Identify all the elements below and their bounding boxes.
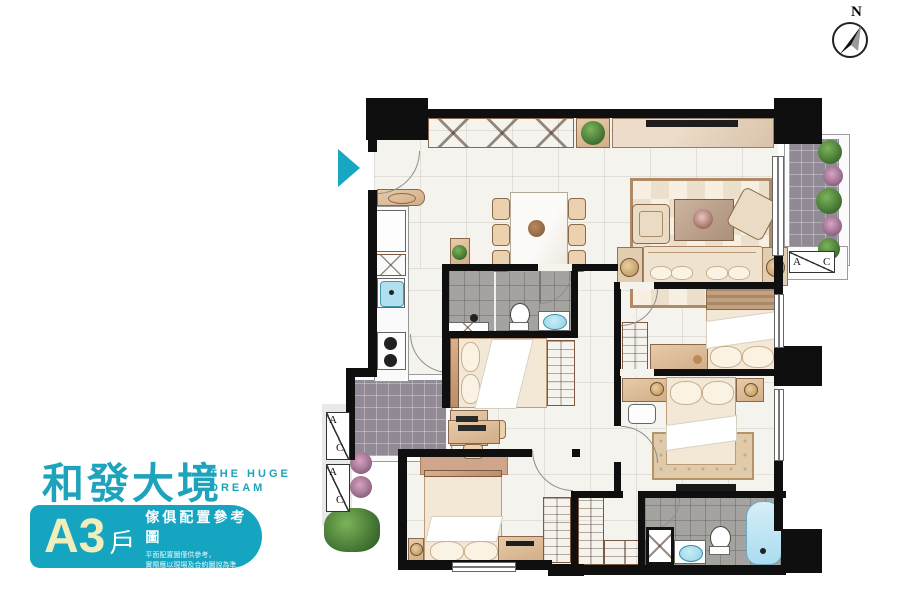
master-pillow [670,381,702,405]
badge-disclaimer-2: 實際應以現場及合約圖說為準 [145,560,262,570]
entrance-arrow-icon [338,149,360,187]
armchair-left-seat [639,211,663,237]
wall-wardrobe-top [571,491,623,498]
dining-chair [492,198,510,220]
dining-chair [568,198,586,220]
utility-shaft [646,527,674,565]
wall-pillar-topright [774,98,822,144]
blbedroom-tv-icon [506,541,534,546]
blbedroom-footboard [424,470,502,477]
wall-bath1-right [571,264,578,338]
bedroom3-pillow [710,346,742,368]
master-tv-icon [676,484,736,491]
wall-mbath-left [638,491,645,567]
toilet-2-tank [709,546,730,555]
wall-mbath-top [638,491,786,498]
brand-tagline-line2: DREAM [210,482,265,494]
sofa-side-pot-icon [620,258,639,277]
stove-burner-icon [384,354,397,367]
sofa-cushion [706,266,728,280]
wall-left-stub [368,140,377,152]
kitchen-cabinet [376,254,406,276]
door-gap-bath1 [538,264,572,271]
door-leaf-bath1 [539,271,541,303]
shower-head-icon [470,314,478,322]
bedroom3-dresser-knob [693,355,702,364]
wall-left [368,190,377,376]
door-gap-master [620,369,654,376]
shrub-icon [324,508,380,552]
shoe-cabinet-tray [388,193,416,204]
balcony-plant-icon [816,188,842,214]
dining-chair [568,224,586,246]
left-balcony-flower-icon [350,476,372,498]
bedroom2-pillow [461,342,480,372]
wall-bath1-top [442,264,618,271]
badge-disclaimer-1: 平面配置圖僅供參考， [145,550,262,560]
wall-blbedroom-north-stub [572,449,580,457]
wall-blbedroom-north [398,449,532,457]
blbedroom-pillow [464,541,498,562]
vanity-2-basin [679,545,703,562]
bathtub-drain-icon [760,548,766,554]
ac-unit-left-top: A C [326,412,350,460]
dining-centerpiece [528,220,545,237]
master-lamp-icon [744,383,758,397]
compass-north-label: N [851,4,862,21]
wall-right-block [774,346,822,386]
dining-chair [492,224,510,246]
wall-top [425,109,780,118]
floorplan-page: { "brand": { "logo_text": "和發大境", "logo_… [0,0,900,600]
tv-icon [646,120,738,127]
wall-corridor-right [614,282,621,376]
blbedroom-dresser [498,536,544,561]
wardrobe-entry [428,118,574,148]
door-gap-bedroom3 [620,282,654,289]
balcony-flower-icon [823,166,843,186]
left-balcony-tiles [352,380,446,456]
blbedroom-wardrobe-a [543,497,571,563]
sink-faucet-icon [389,290,394,295]
bedroom3-quilt [706,288,776,310]
brand-logo-text: 和發大境 [42,450,222,511]
wall-bath1-bottom [442,331,578,338]
sofa-cushion [650,266,672,280]
toilet-1-tank [509,322,529,331]
bedroom2-wardrobe [547,340,575,406]
balcony-flower-icon [822,216,842,236]
unit-suffix: 戶 [109,523,135,560]
vanity-1-basin [543,314,567,330]
wall-master-west-upper [614,376,621,426]
window-blbedroom [452,562,516,572]
wall-bedroom-west [398,450,407,568]
wall-wardrobe-divider [571,491,578,567]
stove-burner-icon [384,337,397,350]
bedroom3-bookshelf [622,322,648,370]
wall-bottom-b [560,565,786,575]
window-balcony-slider [772,156,784,256]
blbedroom-lamp-icon [410,543,423,556]
wall-bed2-west [442,338,450,408]
blbedroom-pillow [430,541,464,562]
master-lamp-icon [650,382,664,396]
master-pillow [702,381,734,405]
badge-title: 傢俱配置參考圖 [145,507,262,547]
wall-pillar-bottomright [781,529,822,573]
wall-bath1-left [442,264,449,338]
sofa-cushion [671,266,693,280]
window-bedroom3 [774,294,784,348]
bedroom3-pillow [742,346,774,368]
console-plant-icon [452,245,467,260]
wall-pillar-topleft [366,98,428,140]
shelf-plant-icon [581,121,605,145]
master-stool [628,404,656,424]
sofa-back-line [648,252,756,253]
window-master [774,389,784,461]
ac-unit-right: A C [789,251,835,273]
coffee-table-flowers-icon [693,209,713,229]
blbedroom-blanket [425,516,503,542]
sofa-cushion [728,266,750,280]
unit-number: A3 [44,513,105,561]
bedroom2-headboard [450,338,459,408]
unit-badge: A3 戶 傢俱配置參考圖 平面配置圖僅供參考， 實際應以現場及合約圖說為準 [30,505,262,568]
blbedroom-desk-monitor [458,425,486,431]
brand-tagline-line1: THE HUGE [210,468,291,480]
blbedroom-wardrobe-b [578,497,604,565]
bedroom2-desk-monitor [456,416,478,422]
ac-unit-left-bottom: A C [326,464,350,512]
blbedroom-desk [448,420,500,444]
refrigerator [376,210,406,252]
shower-glass [494,271,496,331]
badge-text-block: 傢俱配置參考圖 平面配置圖僅供參考， 實際應以現場及合約圖說為準 [145,507,262,570]
